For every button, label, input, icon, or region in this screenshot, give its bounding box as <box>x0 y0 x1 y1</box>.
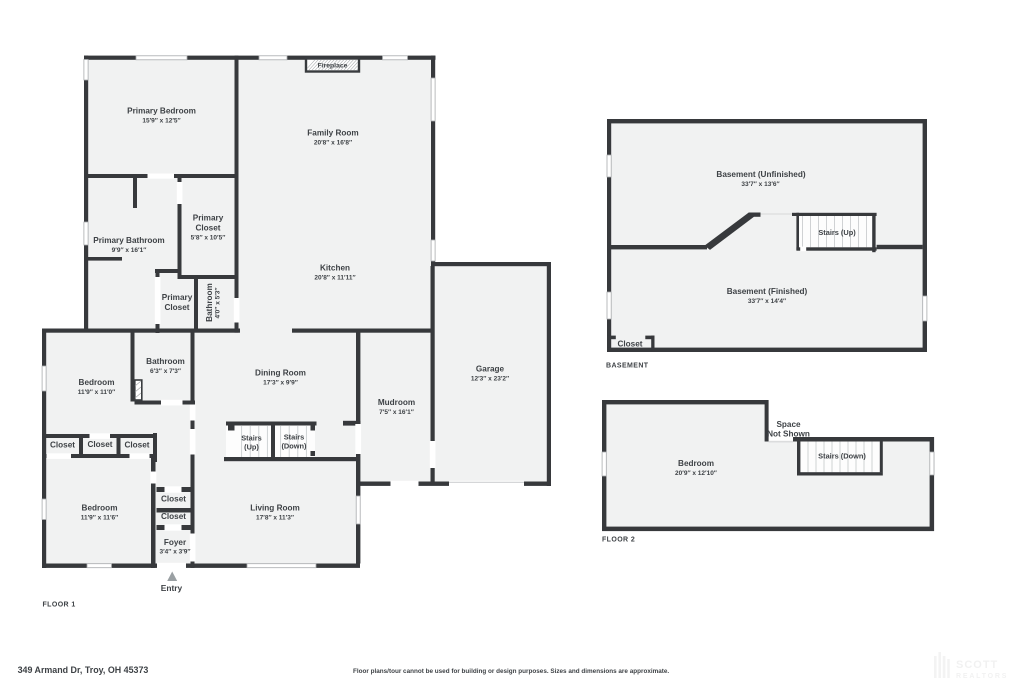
svg-text:12′3″ x 23′2″: 12′3″ x 23′2″ <box>471 376 509 383</box>
svg-text:Bathroom: Bathroom <box>146 357 185 366</box>
svg-text:(Down): (Down) <box>281 442 307 451</box>
svg-text:Mudroom: Mudroom <box>378 398 415 407</box>
svg-text:15′9″ x 12′5″: 15′9″ x 12′5″ <box>142 118 180 125</box>
svg-text:Primary: Primary <box>162 293 193 302</box>
svg-text:Entry: Entry <box>161 583 183 593</box>
svg-text:Closet: Closet <box>124 441 149 450</box>
svg-text:Foyer: Foyer <box>164 538 187 547</box>
svg-text:Closet: Closet <box>50 441 75 450</box>
svg-text:Closet: Closet <box>195 224 220 233</box>
svg-text:11′9″ x 11′6″: 11′9″ x 11′6″ <box>81 515 119 522</box>
svg-text:4′0″ x 5′3″: 4′0″ x 5′3″ <box>215 287 222 318</box>
svg-text:Basement (Finished): Basement (Finished) <box>727 287 808 296</box>
svg-text:SCOTT: SCOTT <box>956 659 998 671</box>
svg-text:Dining Room: Dining Room <box>255 369 306 378</box>
svg-text:Closet: Closet <box>161 495 186 504</box>
svg-text:6′3″ x 7′3″: 6′3″ x 7′3″ <box>150 368 181 375</box>
svg-text:REALTORS: REALTORS <box>956 673 1008 680</box>
svg-text:Not Shown: Not Shown <box>767 430 810 439</box>
svg-text:Kitchen: Kitchen <box>320 264 350 273</box>
svg-text:Closet: Closet <box>164 303 189 312</box>
svg-text:11′9″ x 11′0″: 11′9″ x 11′0″ <box>78 389 116 396</box>
svg-text:Stairs: Stairs <box>284 433 305 442</box>
svg-text:33′7″ x 13′6″: 33′7″ x 13′6″ <box>741 181 779 188</box>
svg-text:Closet: Closet <box>617 340 642 349</box>
svg-text:Family Room: Family Room <box>307 129 358 138</box>
svg-text:Primary: Primary <box>193 214 224 223</box>
svg-text:Primary Bathroom: Primary Bathroom <box>93 236 164 245</box>
svg-text:349 Armand Dr, Troy, OH 45373: 349 Armand Dr, Troy, OH 45373 <box>18 665 149 675</box>
svg-text:7′5″ x 16′1″: 7′5″ x 16′1″ <box>379 409 414 416</box>
svg-text:FLOOR 1: FLOOR 1 <box>43 602 76 609</box>
svg-text:Stairs (Up): Stairs (Up) <box>818 228 856 237</box>
svg-text:20′8″ x 16′8″: 20′8″ x 16′8″ <box>314 140 352 147</box>
svg-text:Bedroom: Bedroom <box>678 459 714 468</box>
svg-text:Bedroom: Bedroom <box>79 378 115 387</box>
svg-text:FLOOR 2: FLOOR 2 <box>602 537 635 544</box>
svg-text:33′7″ x 14′4″: 33′7″ x 14′4″ <box>748 298 786 305</box>
svg-text:Basement (Unfinished): Basement (Unfinished) <box>716 170 805 179</box>
svg-text:17′3″ x 9′9″: 17′3″ x 9′9″ <box>263 380 298 387</box>
svg-text:17′8″ x 11′3″: 17′8″ x 11′3″ <box>256 515 294 522</box>
svg-text:5′8″ x 10′5″: 5′8″ x 10′5″ <box>191 235 226 242</box>
svg-text:Fireplace: Fireplace <box>318 62 348 69</box>
svg-text:Closet: Closet <box>87 440 112 449</box>
svg-text:Primary Bedroom: Primary Bedroom <box>127 107 196 116</box>
svg-text:3′4″ x 3′9″: 3′4″ x 3′9″ <box>159 549 190 556</box>
svg-text:Living Room: Living Room <box>250 504 300 513</box>
svg-text:Stairs: Stairs <box>241 434 262 443</box>
svg-text:(Up): (Up) <box>244 443 259 452</box>
svg-text:20′9″ x 12′10″: 20′9″ x 12′10″ <box>675 470 717 477</box>
svg-text:Closet: Closet <box>161 512 186 521</box>
svg-text:Floor plans/tour cannot be use: Floor plans/tour cannot be used for buil… <box>353 668 669 675</box>
svg-text:Bathroom: Bathroom <box>205 283 214 322</box>
svg-text:9′9″ x 16′1″: 9′9″ x 16′1″ <box>112 247 147 254</box>
svg-text:Garage: Garage <box>476 365 505 374</box>
svg-text:Space: Space <box>776 420 801 429</box>
svg-text:BASEMENT: BASEMENT <box>606 363 649 370</box>
svg-text:20′8″ x 11′11″: 20′8″ x 11′11″ <box>314 275 355 282</box>
svg-text:Stairs (Down): Stairs (Down) <box>818 452 866 461</box>
svg-text:Bedroom: Bedroom <box>82 504 118 513</box>
